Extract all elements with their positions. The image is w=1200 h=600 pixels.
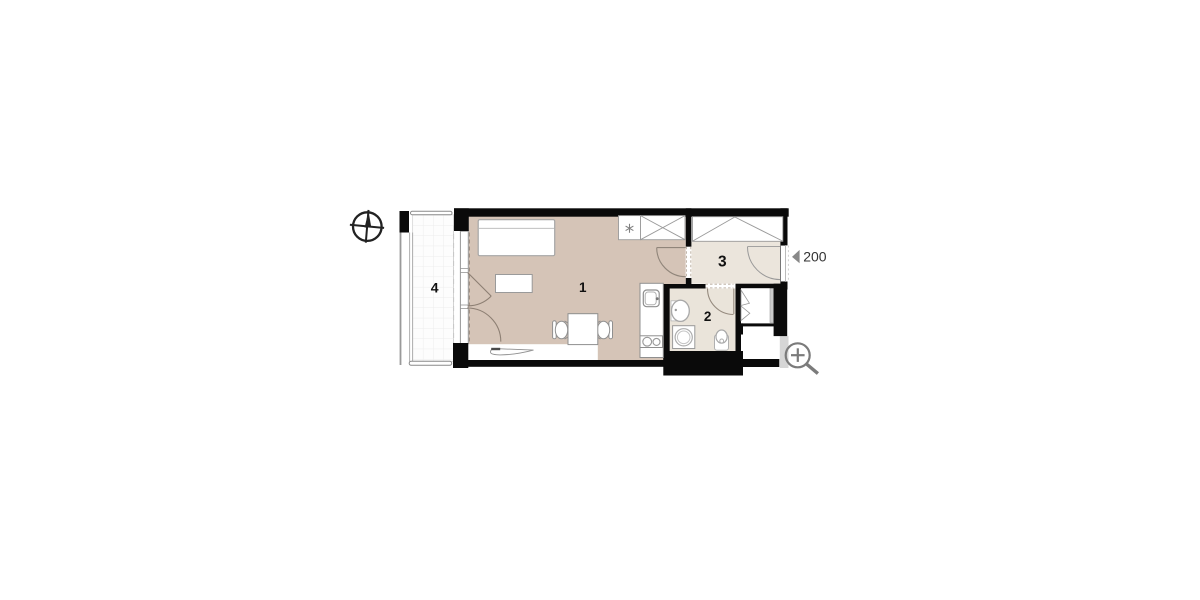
svg-text:1: 1 [579,280,587,295]
svg-text:3: 3 [718,253,727,270]
svg-text:2: 2 [704,309,712,324]
svg-text:4: 4 [431,280,439,296]
svg-text:200: 200 [803,249,827,265]
